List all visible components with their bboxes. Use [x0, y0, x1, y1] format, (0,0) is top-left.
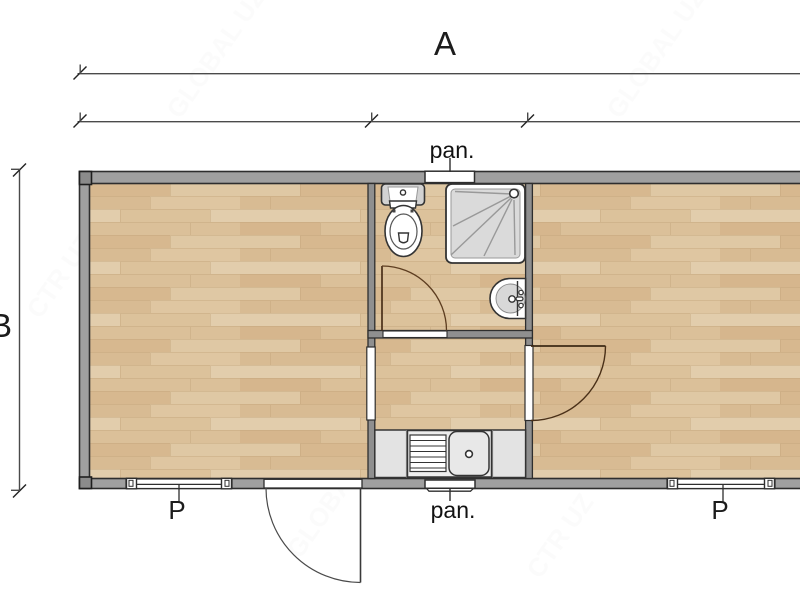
svg-text:P: P — [168, 495, 185, 525]
svg-text:B: B — [0, 307, 12, 344]
svg-text:P: P — [711, 495, 728, 525]
svg-text:pan.: pan. — [431, 497, 476, 523]
svg-text:pan.: pan. — [430, 137, 475, 163]
svg-text:A: A — [434, 25, 456, 62]
